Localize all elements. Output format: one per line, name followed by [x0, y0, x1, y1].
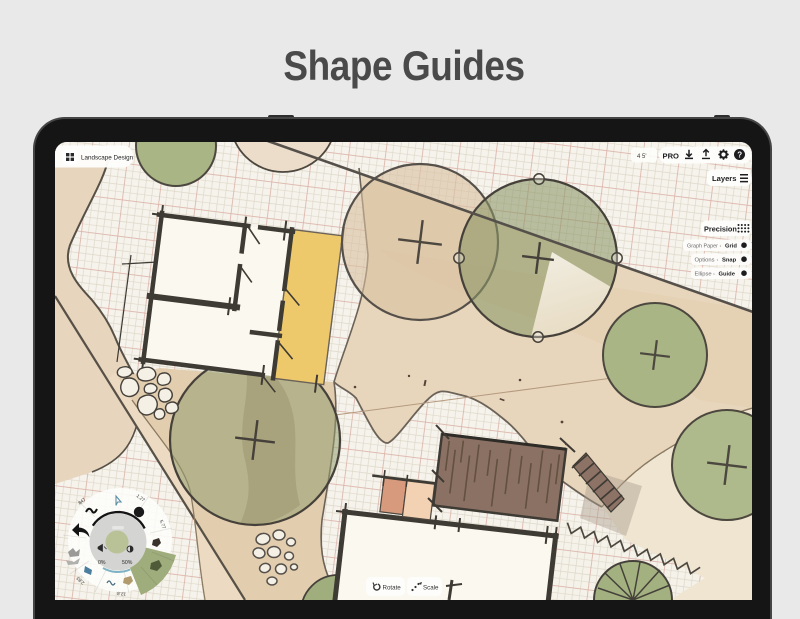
svg-text:Layers: Layers [712, 174, 737, 183]
svg-text:4 5': 4 5' [637, 154, 647, 160]
svg-text:PRO: PRO [663, 152, 680, 161]
svg-text:‹: ‹ [717, 258, 719, 264]
svg-text:Scale: Scale [423, 585, 439, 592]
svg-text:Rotate: Rotate [383, 585, 402, 592]
svg-text:?: ? [737, 151, 742, 160]
svg-text:‹: ‹ [720, 244, 722, 250]
svg-text:Landscape Design: Landscape Design [81, 155, 134, 162]
svg-text:Graph Paper: Graph Paper [687, 244, 718, 250]
svg-text:50%: 50% [122, 560, 133, 566]
svg-text:Snap: Snap [722, 258, 737, 264]
svg-text:0%: 0% [98, 560, 106, 566]
svg-text:Ellipse: Ellipse [695, 272, 712, 278]
svg-text:Precision: Precision [704, 225, 737, 234]
svg-text:Options: Options [695, 258, 715, 264]
svg-text:Guide: Guide [719, 272, 736, 278]
svg-text:‹: ‹ [713, 272, 715, 278]
svg-text:Grid: Grid [725, 244, 737, 250]
